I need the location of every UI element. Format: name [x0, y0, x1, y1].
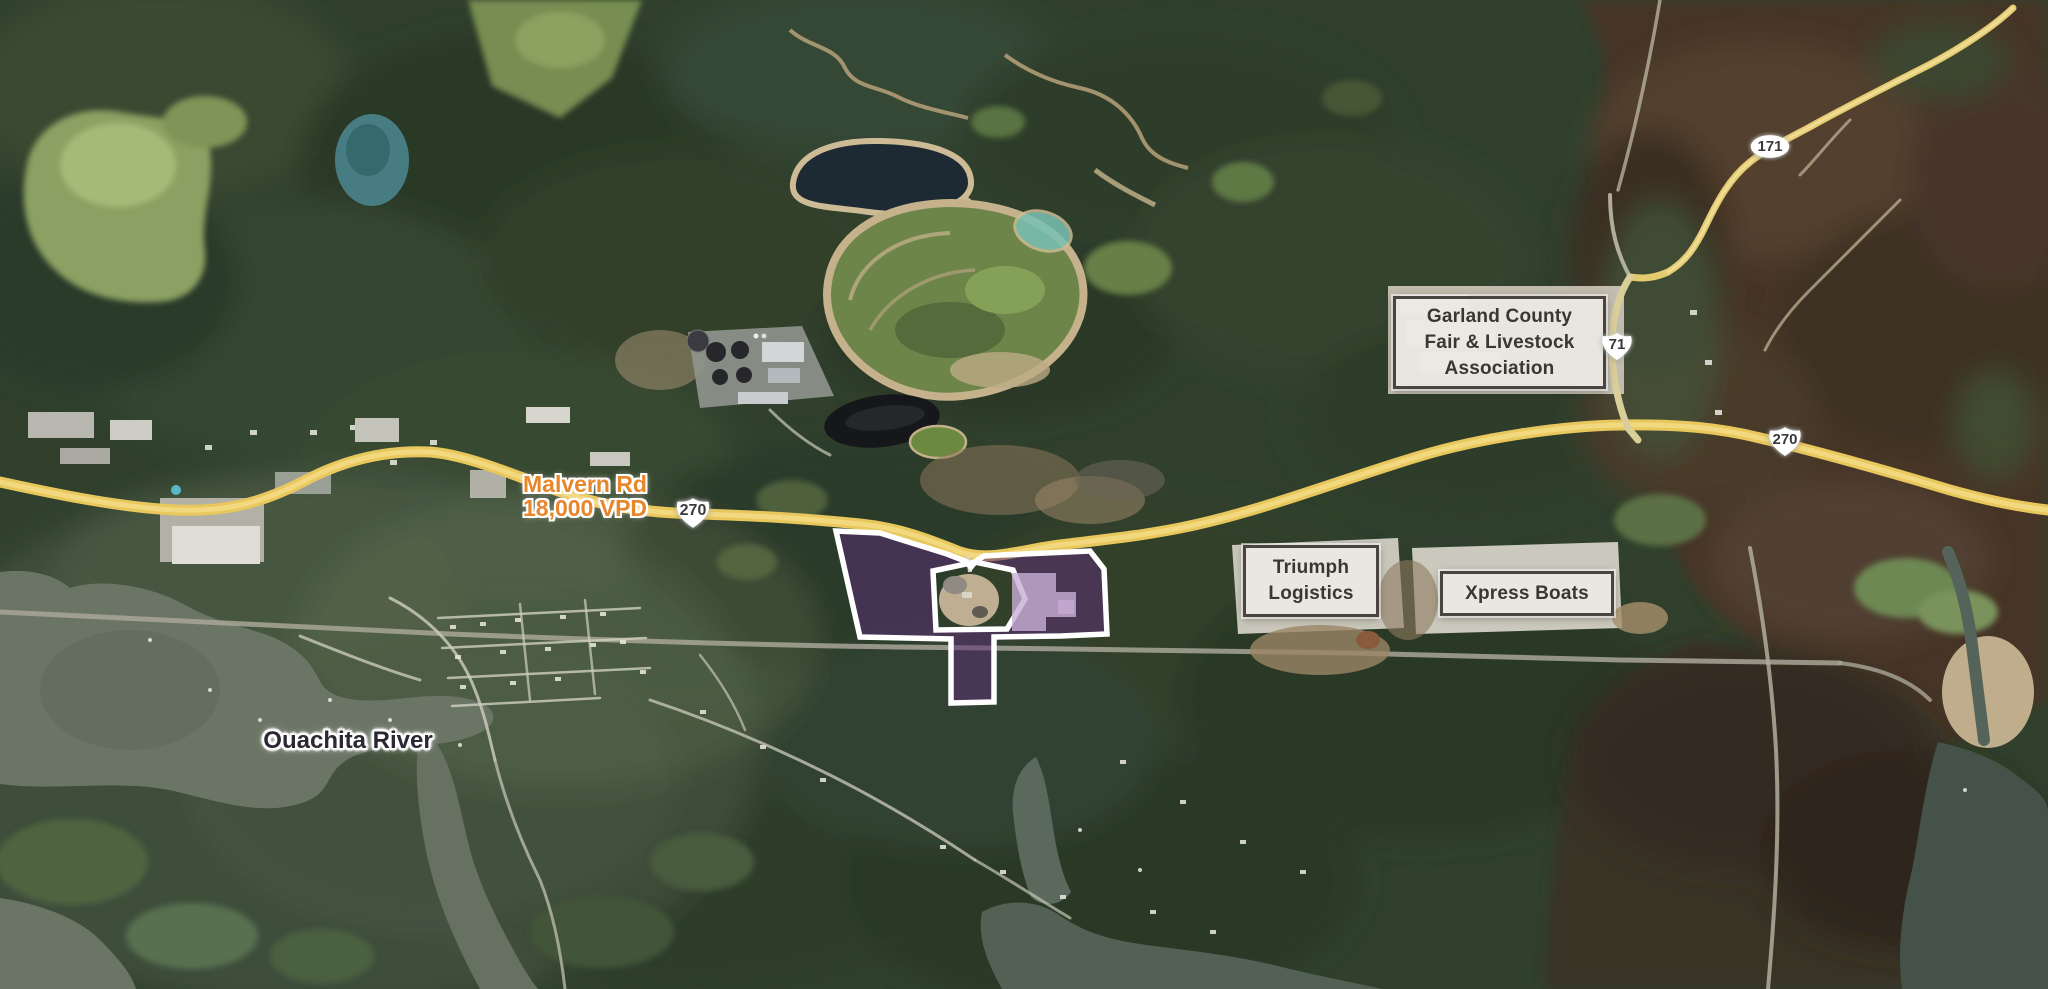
poi-label-garland-county-fair: Garland County Fair & Livestock Associat…: [1393, 296, 1606, 389]
poi-label-line: Garland County: [1396, 304, 1603, 330]
poi-label-triumph-logistics: Triumph Logistics: [1243, 545, 1379, 617]
route-shield-71: 71: [1597, 331, 1637, 362]
route-number: 71: [1609, 336, 1626, 353]
road-name: Malvern Rd: [505, 472, 665, 496]
route-shield-270-west: 270: [669, 496, 717, 530]
poi-label-line: Fair & Livestock: [1396, 330, 1603, 356]
poi-label-line: Triumph: [1246, 555, 1376, 581]
satellite-map: Garland County Fair & Livestock Associat…: [0, 0, 2048, 989]
poi-label-line: Logistics: [1246, 581, 1376, 607]
poi-label-xpress-boats: Xpress Boats: [1440, 571, 1614, 616]
satellite-terrain: [0, 0, 2048, 989]
route-shield-171: 171: [1749, 133, 1791, 160]
route-number: 270: [1772, 431, 1797, 448]
water-label-ouachita-river: Ouachita River: [243, 727, 453, 755]
route-shield-270-east: 270: [1762, 425, 1808, 458]
route-number: 171: [1757, 138, 1782, 155]
traffic-count: 18,000 VPD: [505, 496, 665, 520]
road-label-malvern-rd: Malvern Rd 18,000 VPD: [505, 472, 665, 520]
route-number: 270: [680, 502, 707, 520]
poi-label-line: Association: [1396, 356, 1603, 382]
poi-label-line: Xpress Boats: [1443, 581, 1611, 607]
